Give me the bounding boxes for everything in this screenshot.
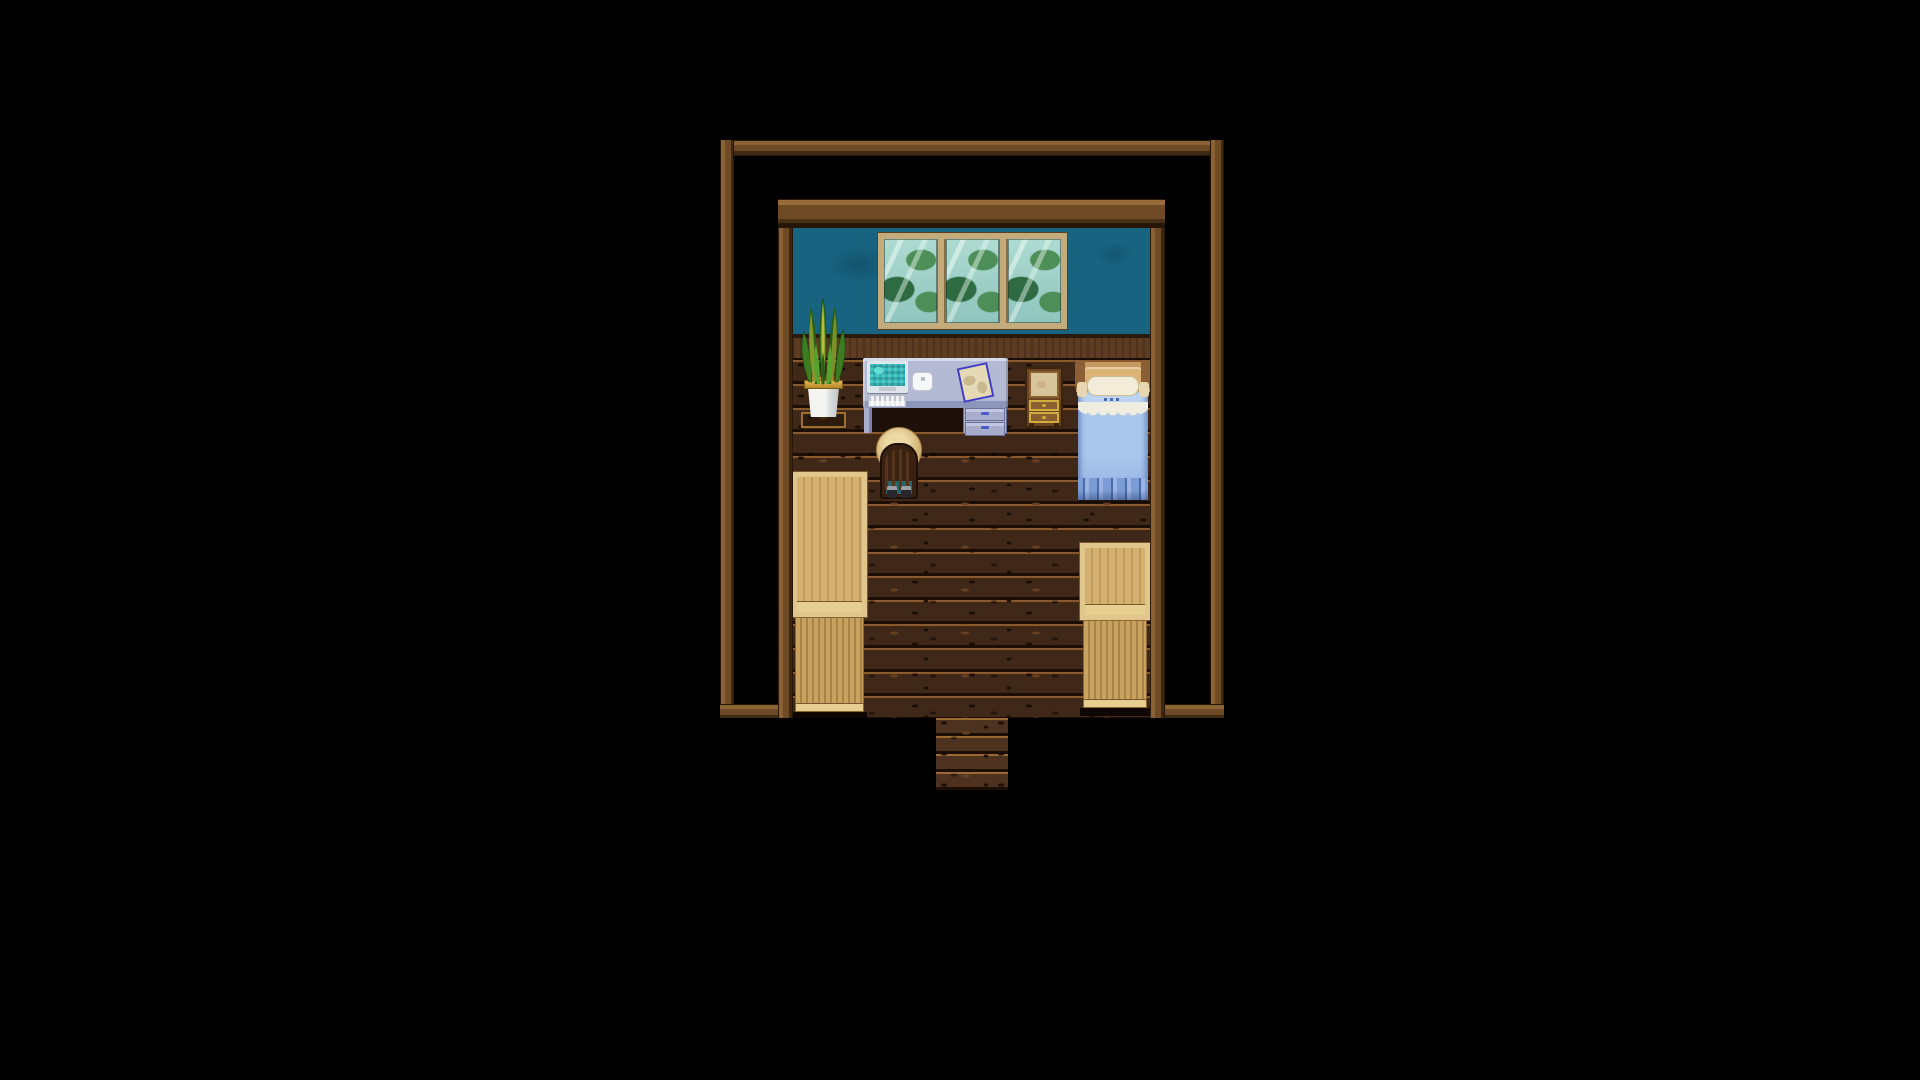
- cabinet-upper-door: [1080, 543, 1150, 620]
- house-outline-left: [720, 140, 734, 718]
- keyboard[interactable]: [868, 395, 906, 407]
- chair-foot: [901, 486, 911, 498]
- bed-side-cushion: [1077, 382, 1087, 397]
- game-viewport[interactable]: [0, 0, 1920, 1080]
- blanket-fringe: [1078, 478, 1148, 500]
- window-pane-left: [884, 239, 937, 323]
- house-outline-top: [720, 140, 1224, 156]
- room-wall-frame-top: [778, 199, 1165, 228]
- desk-chair[interactable]: [876, 427, 922, 503]
- cabinet-lower-door: [795, 617, 864, 712]
- desk-drawer[interactable]: [965, 408, 1005, 421]
- house-outline-right: [1210, 140, 1224, 718]
- window-mullion: [999, 239, 1008, 323]
- white-device[interactable]: [912, 372, 933, 391]
- chair-foot: [887, 486, 897, 498]
- window[interactable]: [878, 233, 1067, 329]
- computer-monitor[interactable]: [867, 361, 908, 393]
- monitor-stand: [879, 387, 896, 391]
- bed-side-cushion: [1139, 382, 1149, 397]
- chair-backrest: [880, 443, 918, 499]
- drawer-handle: [981, 426, 989, 429]
- device-button: [921, 377, 925, 381]
- desk-drawer-unit[interactable]: [963, 406, 1007, 434]
- window-pane-right: [1008, 239, 1061, 323]
- room-wall-frame-right: [1150, 199, 1165, 718]
- entry-walkway[interactable]: [936, 718, 1008, 790]
- chair-slats: [885, 449, 913, 490]
- monitor-screen: [870, 364, 905, 386]
- bedroom-interior: [793, 228, 1150, 718]
- window-mullion: [937, 239, 946, 323]
- bureau-handle: [1042, 416, 1046, 419]
- cabinet-upper-door: [792, 472, 867, 617]
- potted-plant[interactable]: [795, 294, 852, 430]
- bed-pillow: [1087, 376, 1139, 396]
- desk-drawer[interactable]: [965, 422, 1005, 436]
- right-cabinet[interactable]: [1080, 543, 1150, 716]
- window-pane-middle: [946, 239, 999, 323]
- wooden-bureau[interactable]: [1025, 367, 1063, 428]
- cabinet-lower-door: [1083, 620, 1147, 708]
- bureau-feet: [1029, 423, 1059, 426]
- house-outline-bottom-right: [1156, 704, 1224, 718]
- bed[interactable]: [1076, 362, 1150, 500]
- desk-leg: [864, 408, 872, 433]
- planter-pot: [806, 389, 841, 417]
- computer-desk[interactable]: [863, 358, 1008, 434]
- drawer-handle: [981, 412, 989, 415]
- cabinet-shadow: [792, 712, 867, 718]
- bureau-panel: [1029, 371, 1059, 398]
- left-cabinet[interactable]: [792, 472, 867, 718]
- snake-plant-leaves: [795, 294, 852, 386]
- bureau-drawer[interactable]: [1029, 412, 1059, 423]
- blanket-stitching: [1104, 398, 1120, 401]
- room-wall-frame-left: [778, 199, 793, 718]
- cabinet-shadow: [1080, 708, 1150, 716]
- bureau-drawer[interactable]: [1029, 400, 1059, 411]
- bureau-handle: [1042, 404, 1046, 407]
